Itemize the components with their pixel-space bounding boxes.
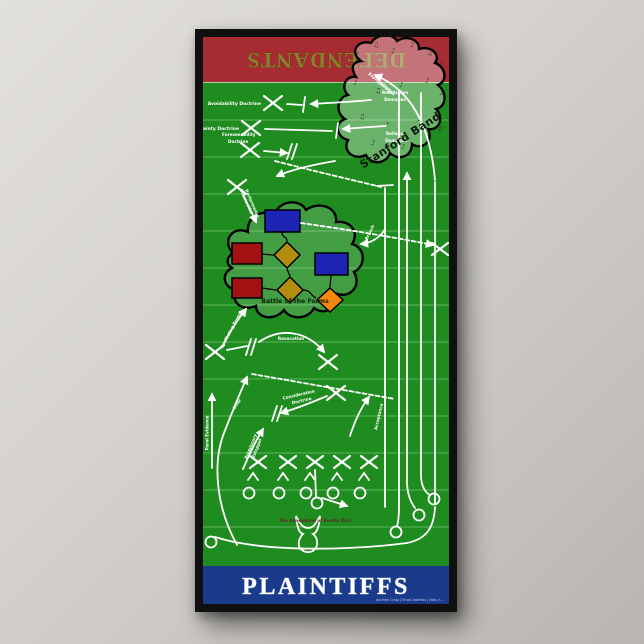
- label-parol-evidence: Parol Evidence: [205, 415, 210, 450]
- wall: DEFENDANTS PLAINTIFFS Andrew Craig | Ema…: [0, 0, 644, 644]
- music-note-icon: ♪: [439, 59, 443, 67]
- label-revocation: Revocation: [278, 336, 304, 341]
- music-note-icon: ♪: [355, 51, 359, 59]
- credit-line: Andrew Craig | Email Address | http://..…: [376, 598, 443, 602]
- music-note-icon: ♪: [371, 139, 375, 147]
- football-field: [203, 82, 449, 566]
- battle-of-forms-title: Battle of the Forms: [261, 298, 329, 305]
- flow-node-red-1: [232, 243, 262, 264]
- poster: DEFENDANTS PLAINTIFFS Andrew Craig | Ema…: [195, 29, 457, 612]
- music-note-icon: ♪: [353, 79, 357, 87]
- music-note-icon: ♪: [391, 47, 395, 55]
- flow-node-blue-top: [265, 210, 300, 232]
- plaintiffs-title: PLAINTIFFS: [242, 574, 410, 600]
- music-note-icon: ♪: [439, 89, 443, 97]
- music-note-icon: ♫: [359, 113, 365, 121]
- flow-node-red-2: [232, 278, 262, 298]
- music-note-icon: ♫: [373, 41, 379, 49]
- label-foreseeability: Foreseeability: [222, 132, 256, 137]
- music-note-icon: ♪: [399, 81, 403, 89]
- play-diagram: DEFENDANTS PLAINTIFFS Andrew Craig | Ema…: [203, 37, 449, 604]
- music-note-icon: ♪: [410, 41, 414, 49]
- music-note-icon: ♫: [427, 49, 433, 57]
- music-note-icon: ♫: [437, 125, 443, 133]
- label-avoidability: Avoidability Doctrine: [208, 101, 261, 107]
- music-note-icon: ♫: [375, 87, 381, 95]
- label-foreseeability: Doctrine: [228, 139, 248, 144]
- label-annexation: The Annexation of Puerto Rico: [279, 518, 351, 523]
- label-restitution: Damages: [384, 97, 406, 102]
- music-note-icon: ♪: [385, 121, 389, 129]
- music-note-icon: ♪: [425, 77, 429, 85]
- flow-node-blue-right: [315, 253, 348, 275]
